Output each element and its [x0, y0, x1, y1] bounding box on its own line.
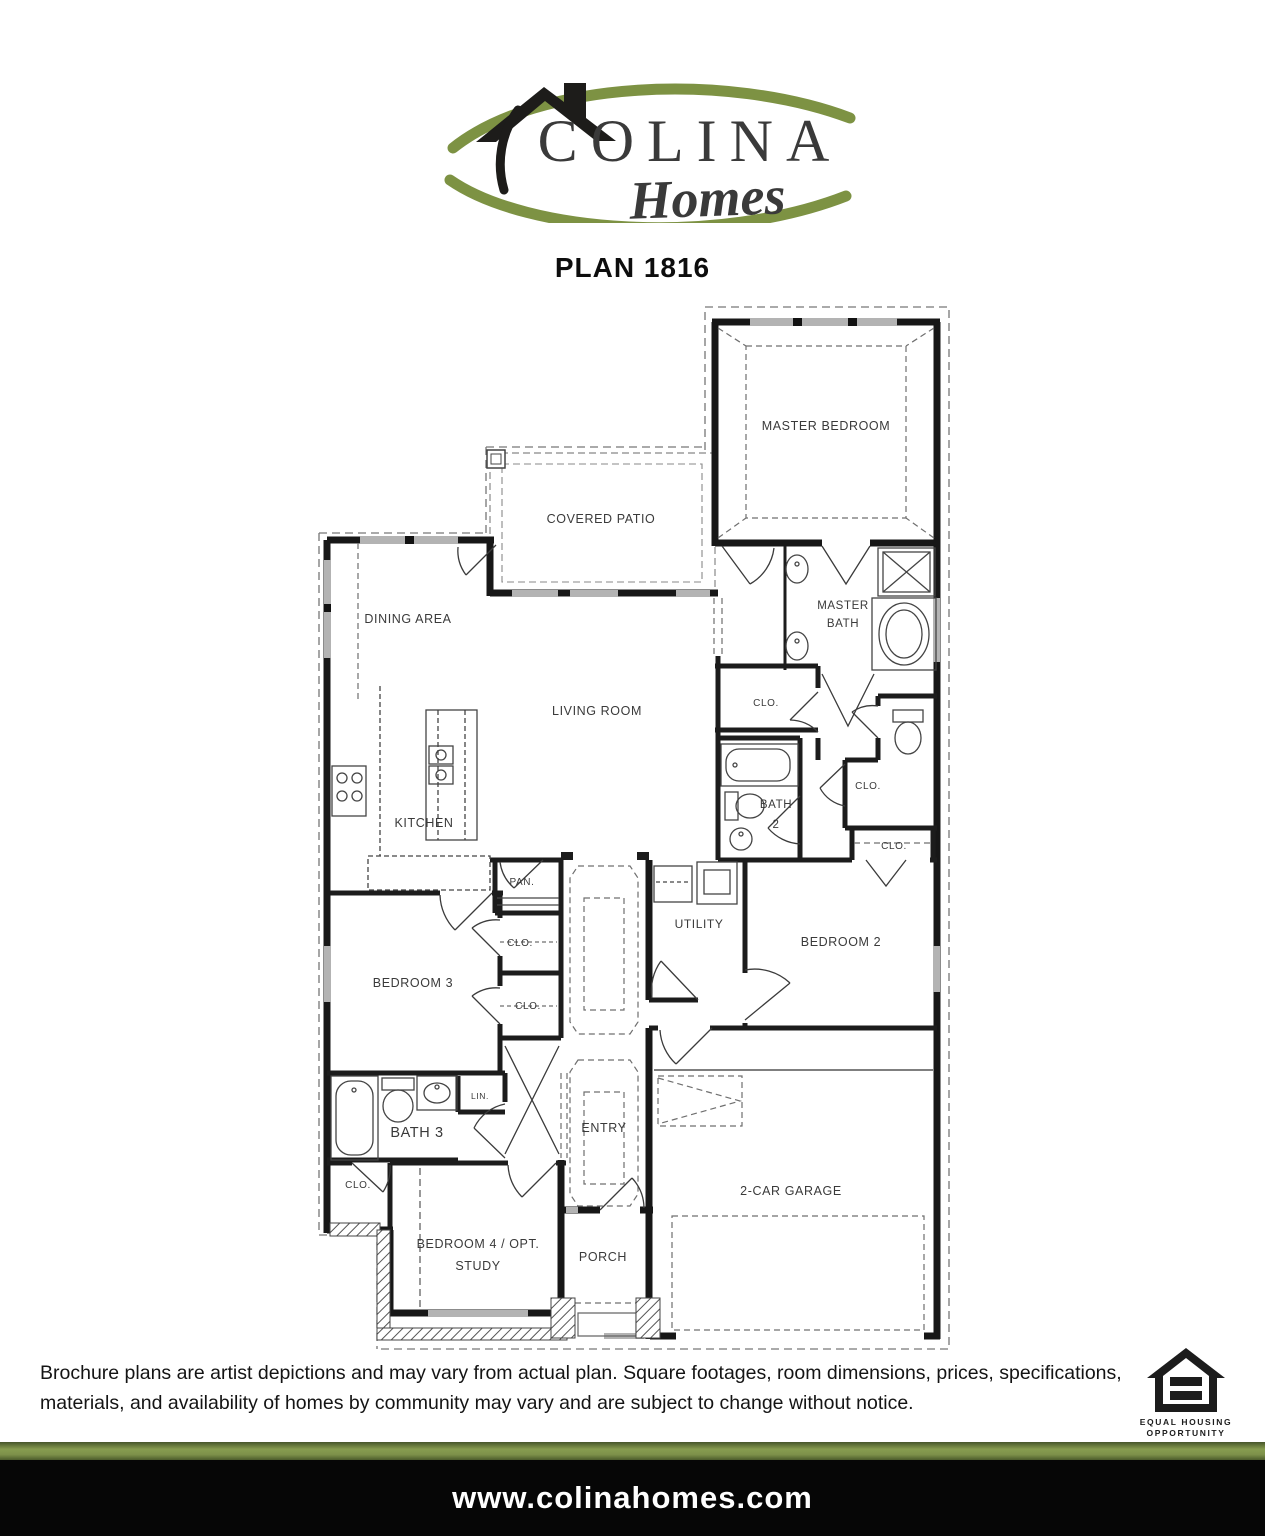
- room-label-bedroom2: BEDROOM 2: [801, 935, 881, 949]
- room-label-linen: LIN.: [471, 1091, 489, 1101]
- bath2-fixtures: [721, 744, 798, 850]
- website-bar: www.colinahomes.com: [0, 1460, 1265, 1536]
- room-label-covered-patio: COVERED PATIO: [547, 512, 656, 526]
- room-label-entry: ENTRY: [581, 1121, 626, 1135]
- room-label-garage: 2-CAR GARAGE: [740, 1184, 842, 1198]
- room-label-hall-closet: CLO.: [855, 781, 881, 792]
- room-label-bath2-2: 2: [773, 819, 780, 831]
- room-label-kitchen: KITCHEN: [394, 816, 453, 830]
- floor-plan: MASTER BEDROOM COVERED PATIO DINING AREA…: [315, 298, 960, 1353]
- room-label-dining-area: DINING AREA: [364, 612, 451, 626]
- room-label-bed4-closet: CLO.: [345, 1180, 371, 1191]
- green-divider-bar: [0, 1442, 1265, 1460]
- master-bath-fixtures: [786, 548, 936, 754]
- room-label-master-bath-2: BATH: [827, 618, 859, 630]
- room-label-bath2-1: BATH: [760, 799, 792, 811]
- plan-title: PLAN 1816: [0, 252, 1265, 284]
- room-label-bedroom4-2: STUDY: [455, 1259, 500, 1273]
- disclaimer-text: Brochure plans are artist depictions and…: [40, 1358, 1125, 1418]
- equal-housing-line1: EQUAL HOUSING: [1138, 1417, 1234, 1428]
- utility-fixtures: [654, 862, 737, 904]
- room-label-living-room: LIVING ROOM: [552, 704, 642, 718]
- room-label-bed2-closet: CLO.: [881, 841, 907, 852]
- equal-housing-house-icon: [1147, 1348, 1225, 1412]
- brochure-page: COLINA Homes PLAN 1816: [0, 0, 1265, 1536]
- room-label-closet2: CLO.: [515, 1001, 541, 1012]
- equal-housing-logo: EQUAL HOUSING OPPORTUNITY: [1138, 1348, 1234, 1440]
- room-label-master-closet: CLO.: [753, 698, 779, 709]
- room-label-bedroom3: BEDROOM 3: [373, 976, 453, 990]
- logo-tagline: Homes: [627, 165, 786, 223]
- logo-name: COLINA: [538, 108, 843, 174]
- room-label-pantry: PAN.: [510, 877, 535, 888]
- colina-homes-logo: COLINA Homes: [398, 38, 868, 223]
- bath3-fixtures: [331, 1076, 457, 1160]
- website-url: www.colinahomes.com: [452, 1480, 813, 1516]
- room-label-master-bedroom: MASTER BEDROOM: [762, 419, 891, 433]
- equal-housing-line2: OPPORTUNITY: [1138, 1428, 1234, 1439]
- room-label-closet1: CLO.: [507, 938, 533, 949]
- porch-steps: [578, 1313, 636, 1336]
- room-label-utility: UTILITY: [675, 917, 724, 931]
- room-label-master-bath-1: MASTER: [817, 600, 869, 612]
- room-label-porch: PORCH: [579, 1250, 627, 1264]
- room-label-bedroom4-1: BEDROOM 4 / OPT.: [417, 1237, 540, 1251]
- room-label-bath3: BATH 3: [390, 1125, 443, 1141]
- logo-graphic: COLINA Homes: [398, 38, 868, 223]
- kitchen-fixtures: [332, 686, 559, 905]
